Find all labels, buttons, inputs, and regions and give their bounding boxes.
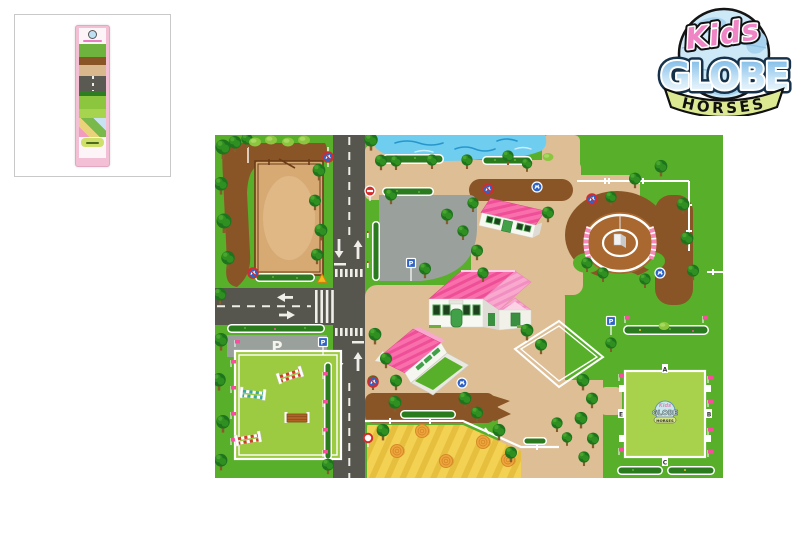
playmat: P bbox=[215, 135, 723, 478]
svg-text:B: B bbox=[707, 412, 712, 419]
round-pen bbox=[583, 212, 657, 274]
svg-text:A: A bbox=[663, 367, 668, 374]
package-window bbox=[79, 28, 106, 158]
package-photo-collage bbox=[79, 118, 106, 137]
mini-globe-logo-icon bbox=[88, 30, 97, 39]
playmat-image: P bbox=[215, 135, 723, 478]
jump-wall bbox=[285, 412, 310, 423]
svg-text:HORSES: HORSES bbox=[656, 418, 674, 423]
svg-text:GLOBE: GLOBE bbox=[652, 409, 678, 417]
product-thumbnail[interactable] bbox=[14, 14, 171, 177]
svg-text:E: E bbox=[619, 412, 623, 419]
mat-art-road bbox=[79, 76, 106, 91]
svg-text:GLOBE: GLOBE bbox=[660, 55, 788, 98]
package-badge bbox=[81, 138, 104, 147]
playmat-retail-package bbox=[75, 25, 110, 167]
balcony bbox=[449, 300, 463, 304]
svg-text:C: C bbox=[663, 460, 668, 467]
mat-art-grass bbox=[79, 44, 106, 57]
package-header-card bbox=[79, 28, 106, 44]
mat-art-field bbox=[79, 109, 106, 118]
mat-art-sand bbox=[79, 65, 106, 76]
brand-logo: Kids Kids Kids GLOBE GLOBE GLOBE HORSES bbox=[650, 4, 798, 116]
mat-art-dirt bbox=[79, 57, 106, 65]
mat-art-arena bbox=[79, 96, 106, 109]
logo-globe-text: GLOBE GLOBE GLOBE bbox=[660, 55, 788, 98]
front-door bbox=[451, 309, 462, 327]
header-text-line bbox=[83, 40, 102, 42]
bridleway-sign bbox=[532, 182, 542, 192]
kids-globe-horses-logo: Kids Kids Kids GLOBE GLOBE GLOBE HORSES bbox=[650, 4, 798, 116]
product-image-page: { "brand": { "kids": "Kids", "globe": "G… bbox=[0, 0, 800, 533]
